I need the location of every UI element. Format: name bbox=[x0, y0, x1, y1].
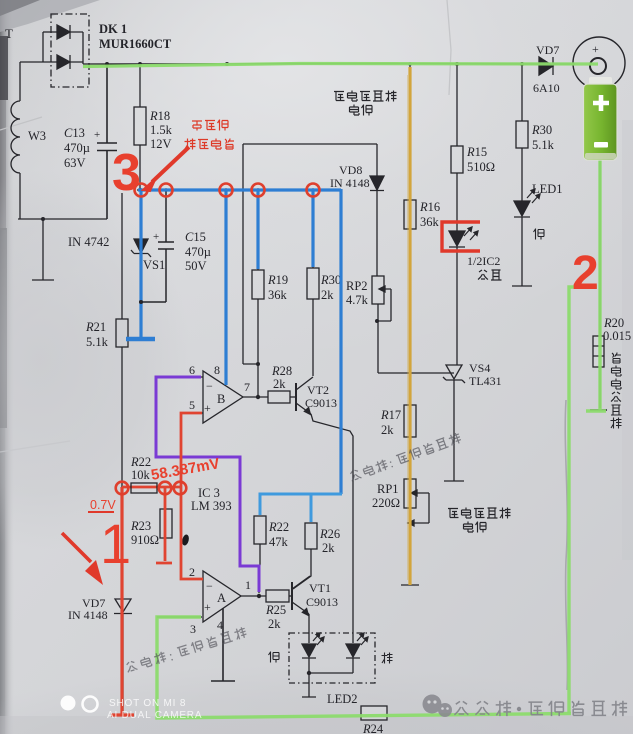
svg-text:AI DUAL CAMERA: AI DUAL CAMERA bbox=[107, 710, 202, 721]
svg-text:R25: R25 bbox=[265, 603, 286, 617]
svg-text:R17: R17 bbox=[380, 408, 401, 422]
svg-text:SHOT ON MI 8: SHOT ON MI 8 bbox=[109, 698, 186, 709]
svg-text:R24: R24 bbox=[362, 722, 384, 734]
svg-text:−: − bbox=[206, 379, 213, 393]
svg-text:1: 1 bbox=[100, 512, 131, 575]
svg-text:63V: 63V bbox=[64, 156, 86, 170]
svg-text:47k: 47k bbox=[269, 535, 289, 549]
svg-text:36k: 36k bbox=[420, 215, 440, 229]
svg-text:5.1k: 5.1k bbox=[532, 138, 555, 152]
svg-text:LED2: LED2 bbox=[327, 692, 358, 706]
svg-text:R16: R16 bbox=[419, 200, 440, 214]
svg-text:2k: 2k bbox=[321, 288, 334, 302]
svg-text:R21: R21 bbox=[85, 320, 106, 334]
svg-text:8: 8 bbox=[214, 363, 220, 377]
svg-text:2k: 2k bbox=[381, 423, 394, 437]
svg-text:MUR1660CT: MUR1660CT bbox=[99, 37, 172, 51]
svg-text:470µ: 470µ bbox=[185, 245, 211, 259]
svg-text:IC 3: IC 3 bbox=[198, 486, 220, 500]
svg-text:2k: 2k bbox=[273, 377, 286, 391]
svg-text:+: + bbox=[204, 401, 211, 415]
svg-text:VD8: VD8 bbox=[339, 163, 362, 177]
svg-text:C9013: C9013 bbox=[305, 396, 337, 410]
svg-text:5: 5 bbox=[189, 398, 195, 412]
svg-text:R23: R23 bbox=[130, 519, 151, 533]
svg-text:A: A bbox=[217, 591, 226, 605]
svg-text:5.1k: 5.1k bbox=[86, 335, 109, 349]
svg-text:B: B bbox=[217, 392, 225, 406]
svg-text:LED1: LED1 bbox=[532, 182, 563, 196]
svg-text:+: + bbox=[204, 600, 211, 614]
svg-text:RP2: RP2 bbox=[346, 279, 368, 293]
svg-text:2: 2 bbox=[189, 565, 195, 579]
svg-text:470µ: 470µ bbox=[64, 141, 90, 155]
svg-text:VT2: VT2 bbox=[307, 383, 329, 397]
svg-text:3: 3 bbox=[190, 622, 196, 636]
svg-text:2: 2 bbox=[572, 247, 599, 300]
svg-text:R15: R15 bbox=[466, 145, 487, 159]
svg-text:R18: R18 bbox=[149, 109, 170, 123]
svg-text:R20: R20 bbox=[603, 316, 624, 330]
svg-text:50V: 50V bbox=[185, 259, 207, 273]
svg-text:R30: R30 bbox=[320, 273, 341, 287]
svg-text:7: 7 bbox=[244, 380, 250, 394]
svg-text:TL431: TL431 bbox=[469, 374, 502, 388]
svg-text:T: T bbox=[5, 26, 13, 41]
svg-text:+: + bbox=[153, 231, 159, 243]
svg-text:510Ω: 510Ω bbox=[467, 160, 495, 174]
svg-text:R26: R26 bbox=[319, 527, 340, 541]
svg-text:3: 3 bbox=[112, 144, 141, 202]
svg-text:2k: 2k bbox=[322, 541, 335, 555]
svg-text:220Ω: 220Ω bbox=[372, 496, 400, 510]
svg-text:4: 4 bbox=[217, 618, 223, 632]
svg-text:6A10: 6A10 bbox=[533, 81, 560, 95]
svg-text:+: + bbox=[592, 42, 599, 56]
svg-text:R28: R28 bbox=[271, 364, 292, 378]
svg-text:VD7: VD7 bbox=[536, 43, 559, 57]
svg-text:R22: R22 bbox=[130, 455, 151, 469]
svg-text:R22: R22 bbox=[268, 520, 289, 534]
svg-text:C13: C13 bbox=[64, 126, 85, 140]
svg-text:IN 4148: IN 4148 bbox=[68, 608, 108, 622]
svg-text:6: 6 bbox=[189, 363, 195, 377]
svg-text:R30: R30 bbox=[531, 123, 552, 137]
svg-text:0.015: 0.015 bbox=[603, 329, 631, 343]
svg-text:2k: 2k bbox=[268, 617, 281, 631]
svg-text:LM 393: LM 393 bbox=[191, 499, 232, 513]
svg-text:C15: C15 bbox=[185, 230, 206, 244]
svg-text:−: − bbox=[206, 579, 213, 593]
svg-text:+: + bbox=[94, 129, 100, 141]
svg-text:0.7V: 0.7V bbox=[90, 498, 116, 512]
svg-text:VT1: VT1 bbox=[309, 581, 331, 595]
svg-text:VS1: VS1 bbox=[143, 258, 165, 272]
svg-text:1.5k: 1.5k bbox=[150, 123, 173, 137]
svg-text:10k: 10k bbox=[131, 468, 151, 482]
svg-text:W3: W3 bbox=[28, 129, 46, 143]
svg-text:C9013: C9013 bbox=[306, 595, 338, 609]
svg-text:910Ω: 910Ω bbox=[131, 533, 159, 547]
svg-text:IN 4742: IN 4742 bbox=[68, 235, 109, 249]
svg-text:DK 1: DK 1 bbox=[99, 22, 127, 36]
svg-text:VS4: VS4 bbox=[469, 361, 490, 375]
svg-text:36k: 36k bbox=[268, 288, 288, 302]
svg-text:1/2IC2: 1/2IC2 bbox=[467, 254, 500, 268]
svg-text:RP1: RP1 bbox=[377, 482, 399, 496]
svg-text:IN 4148: IN 4148 bbox=[330, 176, 370, 190]
svg-text:4.7k: 4.7k bbox=[346, 293, 369, 307]
svg-text:R19: R19 bbox=[267, 273, 288, 287]
svg-text:12V: 12V bbox=[150, 137, 172, 151]
svg-text:1: 1 bbox=[245, 578, 251, 592]
